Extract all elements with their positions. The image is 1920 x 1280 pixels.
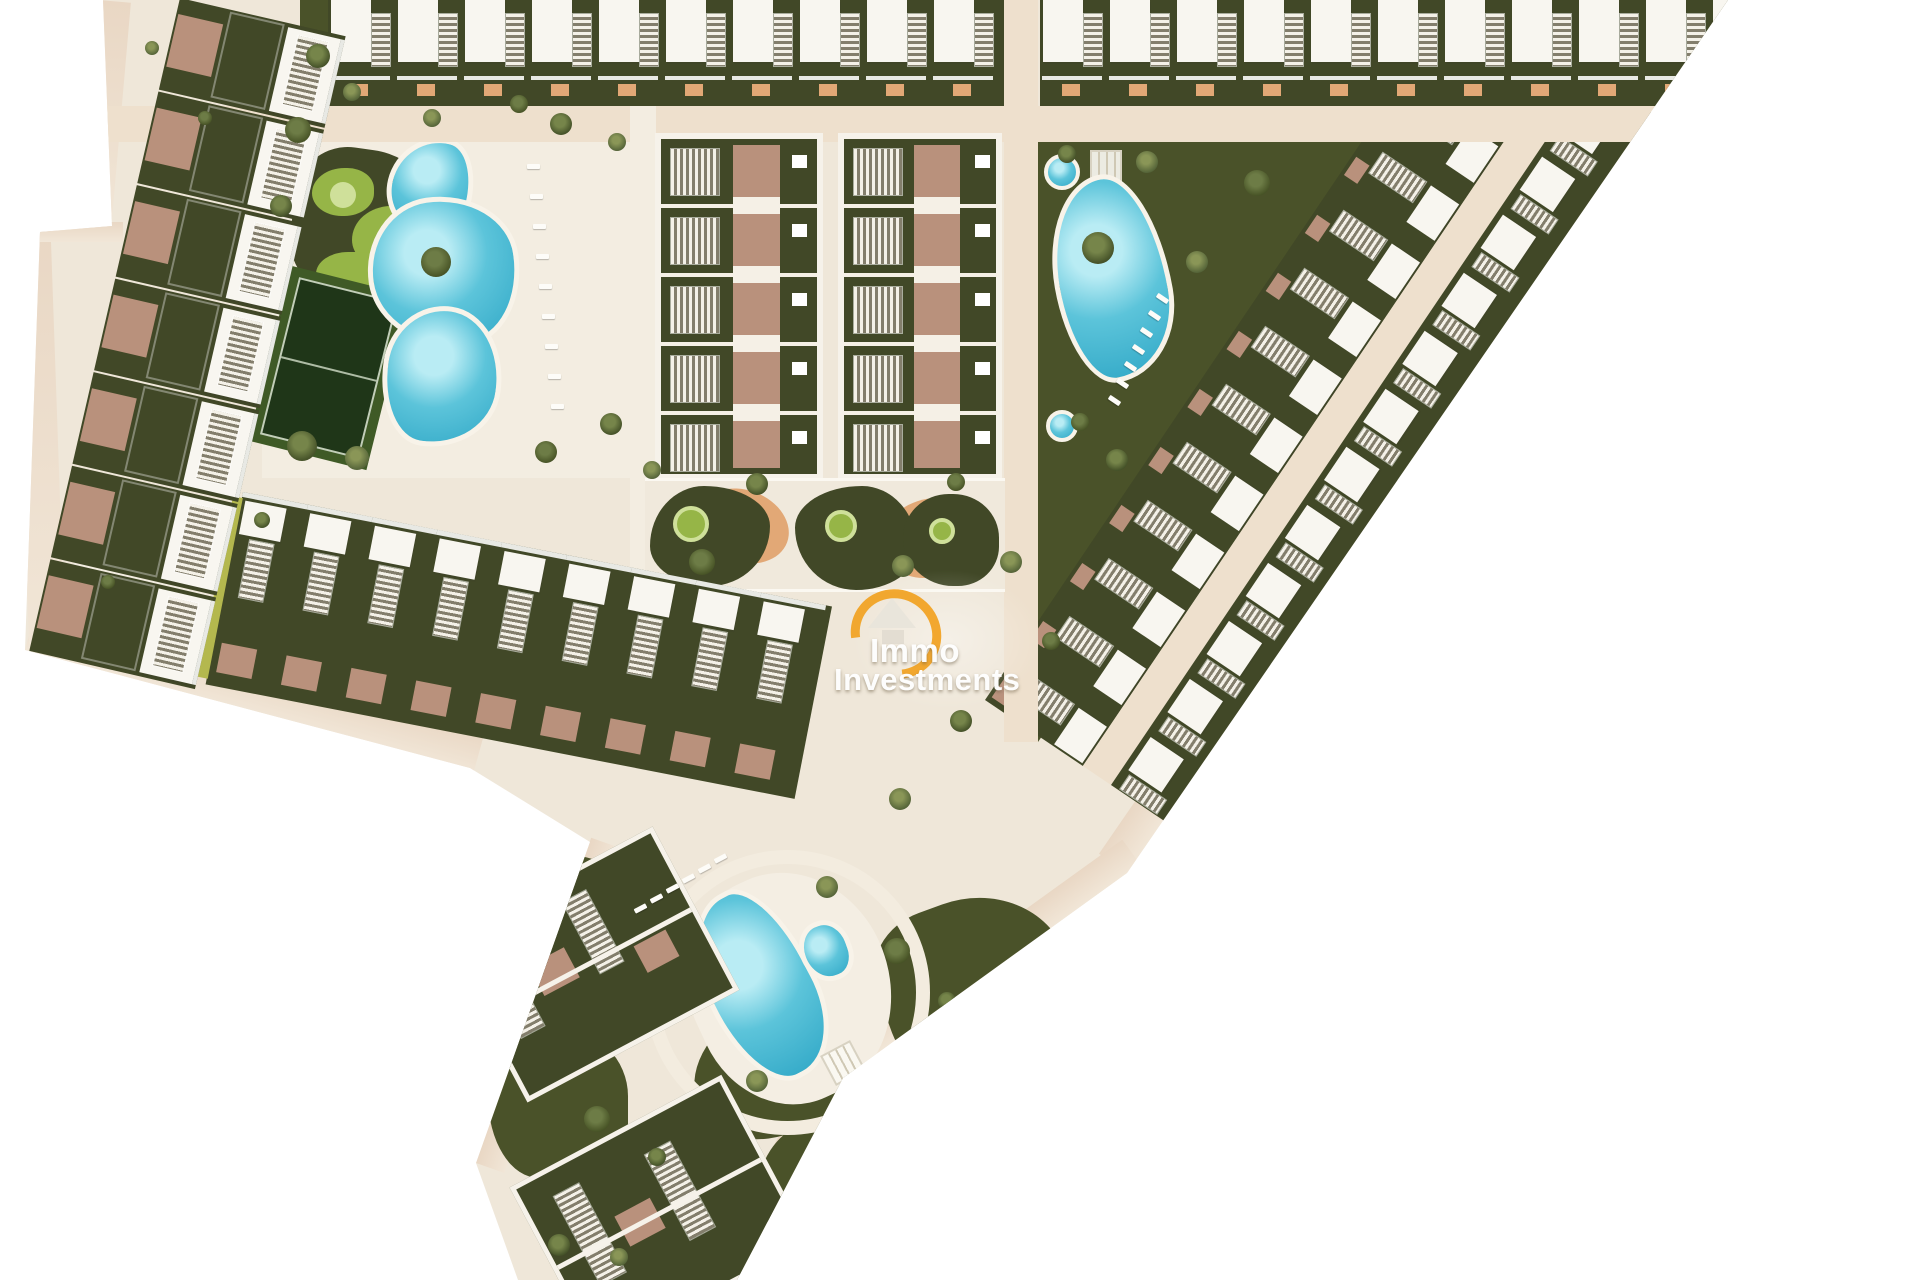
sun-lounger-icon [1108, 395, 1122, 406]
sun-lounger-icon [714, 853, 728, 864]
sun-lounger-icon [666, 883, 680, 894]
sun-lounger-icon [536, 254, 549, 259]
sun-lounger-icon [539, 284, 552, 289]
sun-lounger-icon [682, 873, 696, 884]
tree-icon [901, 1037, 921, 1057]
sun-lounger-icon [545, 344, 558, 349]
patio-tile [1175, 786, 1240, 852]
sun-lounger-icon [634, 903, 648, 914]
sun-lounger-icon [530, 194, 543, 199]
sun-lounger-icon [1156, 293, 1170, 304]
stairs-pergola [1754, 14, 1772, 66]
sun-lounger-icon [698, 863, 712, 874]
sun-lounger-icon [1116, 378, 1130, 389]
sun-lounger-icon [551, 404, 564, 409]
watermark: Immo Investments [812, 560, 1112, 710]
patio-tile [1253, 670, 1318, 736]
patio-tile [1332, 554, 1397, 620]
patio-tile [1371, 496, 1436, 562]
sun-lounger-icon [542, 314, 555, 319]
house-roof-icon [868, 598, 916, 628]
sun-lounger-icon [1124, 361, 1138, 372]
tree-icon [546, 869, 568, 891]
sun-lounger-icon [527, 164, 540, 169]
terrace-railing [1712, 76, 1772, 80]
sun-lounger-icon [1132, 344, 1146, 355]
patio-tile [1214, 728, 1279, 794]
site-plan-canvas: Immo Investments [0, 0, 1920, 1280]
sun-lounger-icon [1148, 310, 1162, 321]
townhouse-unit [1710, 0, 1777, 106]
sun-lounger-icon [650, 893, 664, 904]
tree-icon [502, 986, 532, 1016]
terrace-tile [1732, 84, 1750, 96]
tree-icon [470, 1086, 492, 1108]
sun-lounger-icon [1140, 327, 1154, 338]
sun-lounger-icon [548, 374, 561, 379]
sun-lounger-icon [533, 224, 546, 229]
watermark-text-line2: Investments [834, 662, 1020, 698]
patio-tile [1293, 612, 1358, 678]
